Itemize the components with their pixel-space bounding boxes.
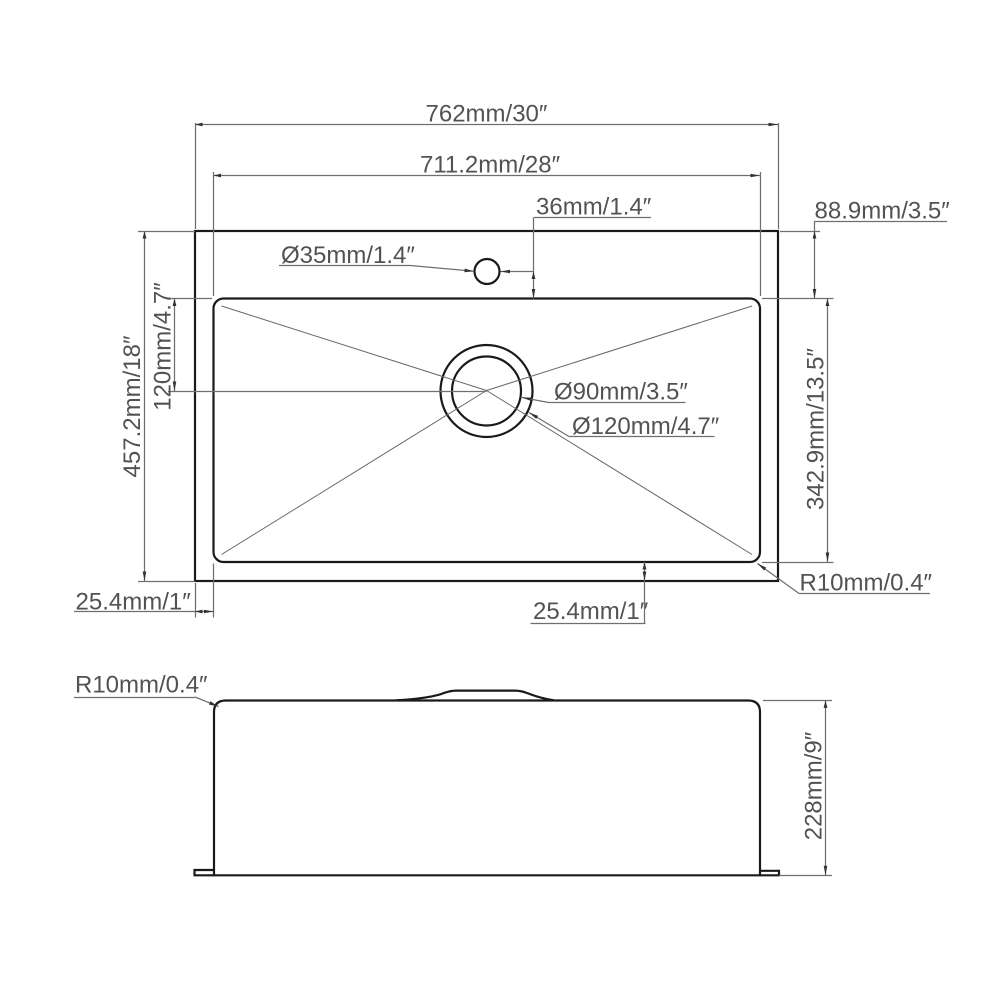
svg-text:R10mm/0.4″: R10mm/0.4″	[75, 672, 208, 699]
svg-text:711.2mm/28″: 711.2mm/28″	[420, 152, 561, 179]
svg-text:Ø120mm/4.7″: Ø120mm/4.7″	[572, 413, 720, 440]
svg-text:R10mm/0.4″: R10mm/0.4″	[800, 570, 933, 597]
svg-text:88.9mm/3.5″: 88.9mm/3.5″	[815, 198, 951, 225]
svg-text:228mm/9″: 228mm/9″	[801, 731, 828, 840]
svg-text:120mm/4.7″: 120mm/4.7″	[150, 282, 177, 411]
svg-text:25.4mm/1″: 25.4mm/1″	[76, 589, 192, 616]
svg-text:Ø35mm/1.4″: Ø35mm/1.4″	[281, 242, 415, 269]
svg-text:342.9mm/13.5″: 342.9mm/13.5″	[803, 348, 830, 510]
svg-text:762mm/30″: 762mm/30″	[426, 101, 548, 128]
svg-text:25.4mm/1″: 25.4mm/1″	[533, 598, 649, 625]
svg-text:Ø90mm/3.5″: Ø90mm/3.5″	[554, 379, 688, 406]
svg-text:36mm/1.4″: 36mm/1.4″	[536, 194, 652, 221]
svg-text:457.2mm/18″: 457.2mm/18″	[119, 335, 146, 477]
